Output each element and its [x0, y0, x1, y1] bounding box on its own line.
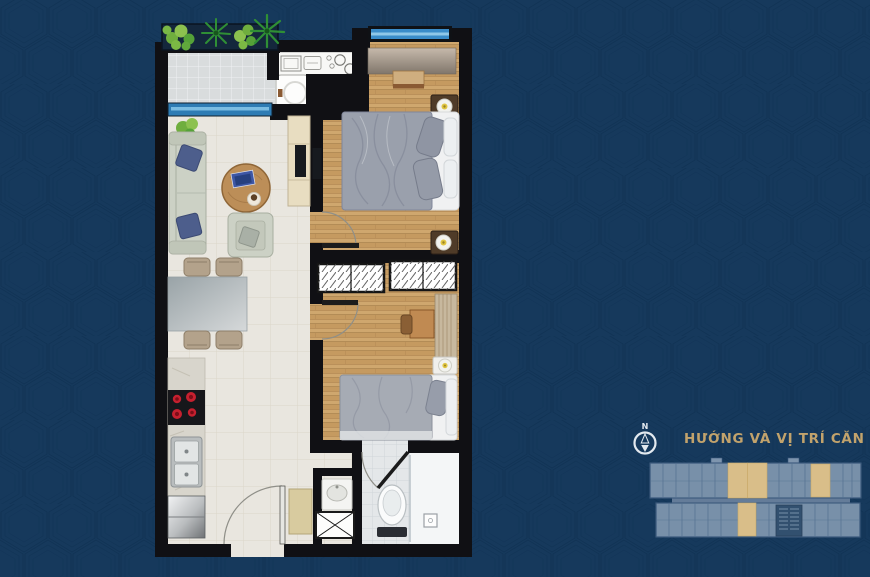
shower-head	[424, 514, 437, 527]
minimap-unit-highlight	[748, 463, 768, 498]
bed2	[340, 375, 457, 440]
washing-machine-handle	[278, 89, 283, 97]
bedroom2-door-threshold	[310, 304, 323, 340]
toilet-tank	[377, 527, 407, 537]
minimap-unit-highlight	[728, 463, 748, 498]
wall-bedroom2-left-lower	[310, 340, 323, 443]
dining-table	[168, 277, 247, 331]
door-leaf	[322, 243, 359, 248]
desk-chair	[401, 315, 412, 334]
wall-bottom-left	[155, 544, 231, 557]
minimap-bottom-bar	[656, 503, 860, 537]
vanity-cabinet	[316, 512, 354, 538]
wardrobe	[390, 261, 456, 290]
coffee-table	[222, 164, 270, 212]
scene: N	[0, 0, 870, 577]
duvet	[340, 375, 432, 440]
shoe-cabinet	[289, 489, 312, 534]
minimap-unit-highlight	[738, 503, 756, 536]
bedroom2-cabinet	[435, 294, 457, 358]
pillow-white	[444, 118, 457, 156]
toilet	[377, 485, 407, 537]
panel-title: HƯỚNG VÀ VỊ TRÍ CĂN HỘ	[684, 431, 870, 447]
dining-chair	[216, 258, 242, 276]
pillow-white	[444, 160, 457, 198]
wardrobe	[318, 264, 384, 292]
vanity	[316, 479, 354, 538]
bedroom1-dresser	[368, 48, 456, 74]
bedroom1-bench-edge	[393, 84, 424, 89]
sheet-fold	[340, 431, 432, 440]
shower-area	[410, 453, 459, 544]
wall-bathroom-top-right	[408, 440, 472, 453]
armchair	[228, 213, 273, 257]
apartment-location-minimap	[650, 458, 861, 537]
tv-living	[295, 145, 306, 177]
balcony-floor	[167, 52, 278, 106]
minimap-top-bar	[650, 463, 861, 498]
kitchen-sink	[171, 437, 202, 487]
tv-bedroom1	[313, 148, 322, 179]
nightstand	[431, 231, 458, 254]
wall-kitchen-bedroom1	[352, 28, 369, 78]
refrigerator	[168, 496, 205, 538]
door-leaf	[322, 300, 358, 305]
balcony-sliding-door-glare	[171, 107, 269, 111]
compass-north-label: N	[642, 422, 649, 431]
wall-bathroom-top-left	[310, 440, 362, 453]
apartment-floorplan-poster: N	[0, 0, 870, 577]
dining-chair	[184, 258, 210, 276]
door-leaf	[280, 486, 285, 544]
wall-left	[155, 42, 168, 557]
pillow-white	[446, 379, 457, 435]
vanity-faucet	[336, 486, 339, 489]
kitchen-left	[168, 358, 205, 538]
bedroom1-bench	[393, 71, 424, 86]
tv-console	[288, 116, 310, 206]
wall-right	[459, 28, 472, 557]
dining-chair	[216, 331, 242, 349]
bathroom-door-threshold	[362, 440, 408, 453]
bedroom1-window-glare	[371, 33, 449, 36]
wall-bottom-right	[284, 544, 472, 557]
floor-plan	[155, 15, 472, 557]
dining-chair	[184, 331, 210, 349]
nightstand	[433, 357, 457, 374]
bedroom1-door-threshold	[310, 212, 323, 243]
entry-threshold	[231, 544, 284, 557]
minimap-unit-highlight	[811, 464, 830, 497]
sofa	[169, 132, 206, 254]
bed1	[342, 112, 459, 210]
minimap-stair-core	[776, 505, 802, 536]
sofa-pillow	[176, 213, 203, 240]
coffee-cup	[251, 194, 257, 200]
